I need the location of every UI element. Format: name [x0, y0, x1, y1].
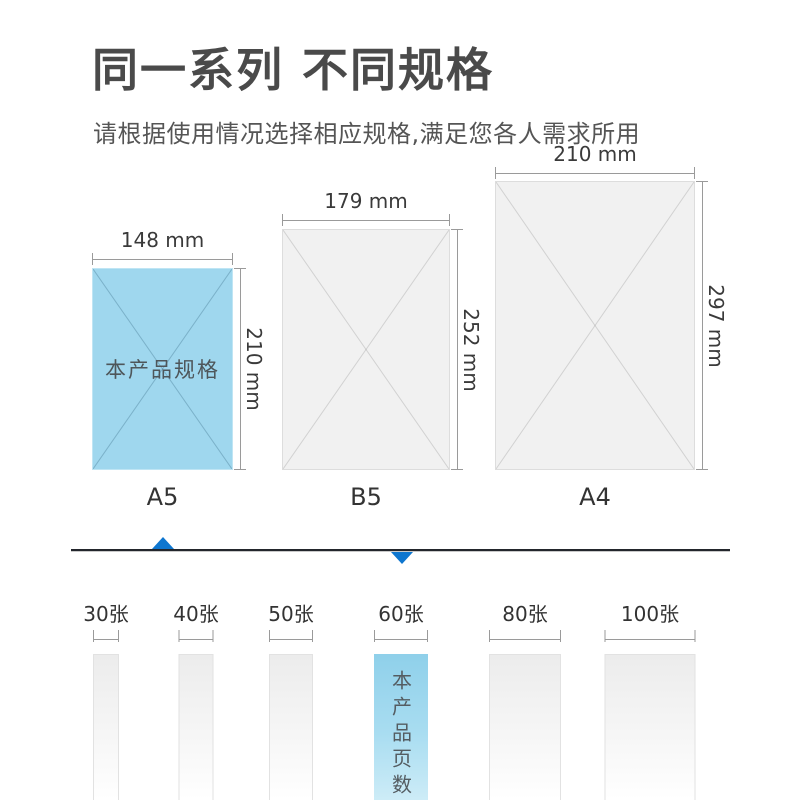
diagonal-cross-icon [283, 230, 449, 469]
sheet-count-column-30: 30张 [56, 601, 156, 800]
sheet-count-label: 60张 [351, 601, 451, 627]
sheet-bar-highlighted: 本产品页数 [374, 654, 428, 800]
sheet-count-label: 40张 [146, 601, 246, 627]
b5-width-dimension-line [282, 214, 450, 226]
a5-width-dimension-line [92, 253, 233, 265]
sheet-count-column-100: 100张 [600, 601, 700, 800]
a4-width-dimension-label: 210 mm [495, 141, 695, 167]
product-spec-infographic: 同一系列 不同规格 请根据使用情况选择相应规格,满足您各人需求所用 148 mm… [0, 0, 800, 800]
sheet-count-column-80: 80张 [475, 601, 575, 800]
sheet-width-dimension [93, 630, 119, 642]
down-arrow-icon [391, 552, 413, 564]
sheet-count-column-50: 50张 [241, 601, 341, 800]
diagonal-cross-icon [496, 182, 694, 469]
sheet-count-label: 100张 [600, 601, 700, 627]
sheet-width-dimension [489, 630, 561, 642]
sheet-bar [605, 654, 696, 800]
up-arrow-icon [152, 537, 174, 549]
sheet-bar [489, 654, 561, 800]
paper-box-a5: 本产品规格 [92, 268, 233, 470]
sheet-width-dimension [269, 630, 313, 642]
sheet-count-column-60: 60张 本产品页数 [351, 601, 451, 800]
b5-width-dimension-label: 179 mm [282, 188, 450, 214]
paper-box-b5 [282, 229, 450, 470]
sheet-count-column-40: 40张 [146, 601, 246, 800]
sheet-bar [269, 654, 313, 800]
b5-height-dimension-label: 252 mm [459, 229, 483, 470]
sheet-count-label: 30张 [56, 601, 156, 627]
sheet-count-label: 80张 [475, 601, 575, 627]
sheet-bar [179, 654, 214, 800]
sheet-bar [93, 654, 119, 800]
product-pages-note: 本产品页数 [387, 670, 416, 800]
paper-size-label-a4: A4 [495, 481, 695, 513]
sheet-count-label: 50张 [241, 601, 341, 627]
sheet-width-dimension [605, 630, 696, 642]
page-title: 同一系列 不同规格 [92, 34, 494, 100]
a5-height-dimension-label: 210 mm [242, 268, 266, 470]
a4-height-dimension-label: 297 mm [704, 181, 728, 470]
paper-size-label-b5: B5 [282, 481, 450, 513]
a5-width-dimension-label: 148 mm [92, 227, 233, 253]
a4-width-dimension-line [495, 167, 695, 179]
product-spec-note: 本产品规格 [93, 269, 232, 469]
paper-size-label-a5: A5 [92, 481, 233, 513]
paper-box-a4 [495, 181, 695, 470]
sheet-width-dimension [179, 630, 214, 642]
sheet-width-dimension [374, 630, 428, 642]
